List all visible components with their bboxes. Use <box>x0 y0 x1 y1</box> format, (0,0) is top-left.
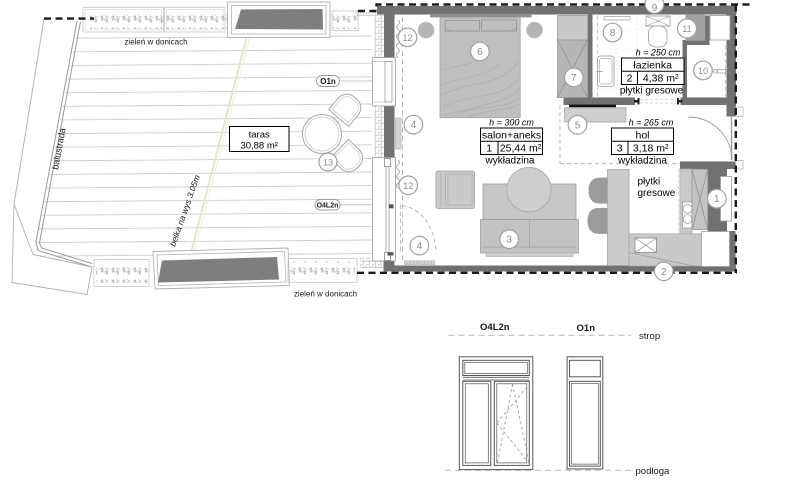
svg-text:13: 13 <box>323 157 333 167</box>
svg-text:O1n: O1n <box>320 77 336 86</box>
svg-text:4: 4 <box>417 241 423 252</box>
svg-text:strop: strop <box>639 331 660 342</box>
svg-text:wykładzina: wykładzina <box>617 156 667 167</box>
svg-text:10: 10 <box>698 66 708 76</box>
svg-text:4: 4 <box>411 120 417 131</box>
svg-text:O4L2n: O4L2n <box>480 322 510 333</box>
svg-text:3: 3 <box>617 143 623 155</box>
svg-text:O1n: O1n <box>577 323 596 334</box>
svg-text:3,18 m²: 3,18 m² <box>633 143 669 155</box>
svg-text:zieleń w donicach: zieleń w donicach <box>294 290 357 299</box>
svg-text:płytki gresowe: płytki gresowe <box>620 86 684 97</box>
svg-text:3: 3 <box>506 235 512 246</box>
svg-text:taras: taras <box>249 130 270 141</box>
svg-text:7: 7 <box>571 73 577 84</box>
svg-text:O4L2n: O4L2n <box>317 203 339 210</box>
svg-text:h = 250 cm: h = 250 cm <box>636 48 681 58</box>
svg-text:1: 1 <box>714 194 720 205</box>
svg-text:1: 1 <box>486 143 492 155</box>
svg-text:zieleń w donicach: zieleń w donicach <box>124 38 187 47</box>
svg-text:2: 2 <box>661 267 667 278</box>
svg-text:8: 8 <box>610 28 616 39</box>
svg-text:gresowe: gresowe <box>638 188 676 199</box>
svg-text:30,88 m²: 30,88 m² <box>240 141 278 152</box>
svg-text:podłoga: podłoga <box>636 466 671 477</box>
svg-text:2: 2 <box>627 73 633 85</box>
svg-text:5: 5 <box>575 120 581 131</box>
svg-text:11: 11 <box>682 24 691 34</box>
svg-text:salon+aneks: salon+aneks <box>482 130 541 142</box>
svg-text:12: 12 <box>402 33 412 43</box>
svg-text:płytki: płytki <box>638 177 661 188</box>
svg-text:h = 300 cm: h = 300 cm <box>489 118 534 128</box>
svg-text:9: 9 <box>652 3 658 14</box>
svg-text:25,44 m²: 25,44 m² <box>500 143 542 155</box>
svg-text:12: 12 <box>403 181 413 191</box>
svg-text:6: 6 <box>477 47 483 58</box>
svg-text:łazienka: łazienka <box>633 60 672 72</box>
svg-text:hol: hol <box>635 130 649 142</box>
svg-text:wykładzina: wykładzina <box>485 156 535 167</box>
svg-text:4,38 m²: 4,38 m² <box>643 73 679 85</box>
svg-text:h = 265 cm: h = 265 cm <box>629 118 674 128</box>
